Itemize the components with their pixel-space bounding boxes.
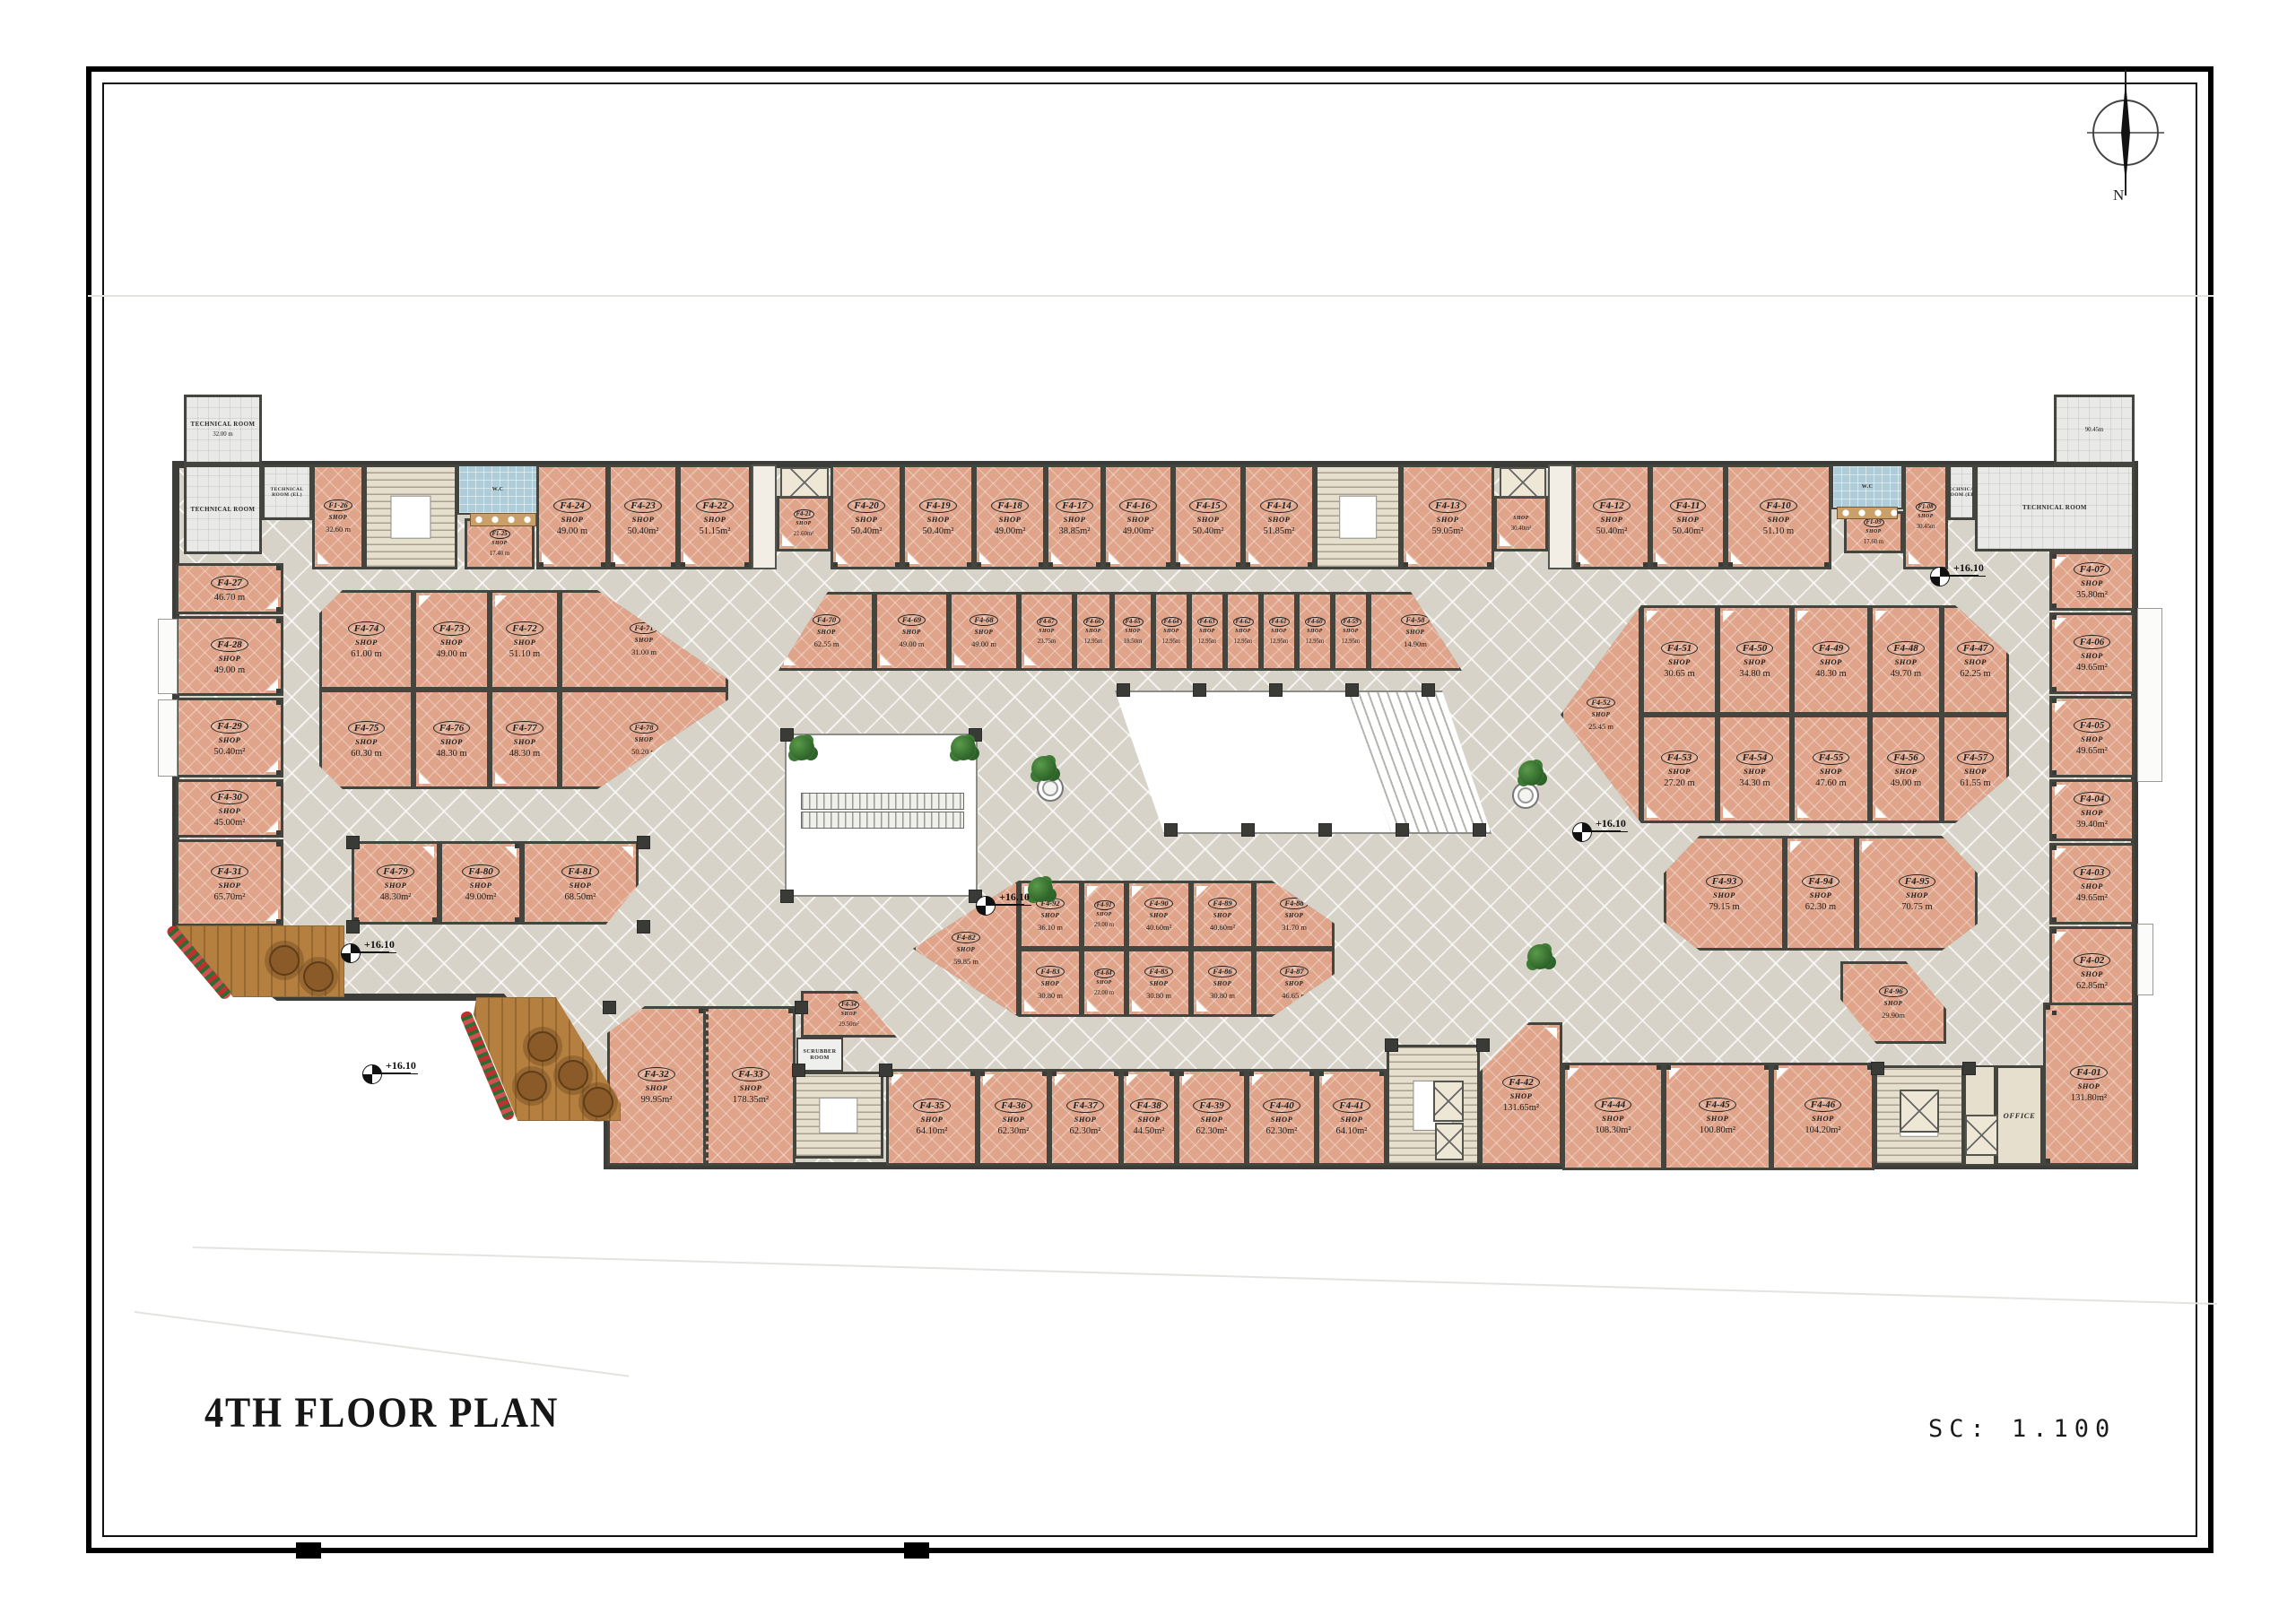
shop-area: 18.50m <box>1124 637 1143 647</box>
column-dot <box>276 616 283 623</box>
shop-word: SHOP <box>1510 1092 1533 1100</box>
shop-unit-F4-23: F4-23SHOP50.40m² <box>608 465 678 569</box>
shop-id-tag: F4-24 <box>553 499 591 513</box>
shop-id-tag: F4-51 <box>1661 641 1699 656</box>
shop-id-tag: F4-48 <box>1887 641 1925 656</box>
shop-area: 178.35m² <box>733 1095 769 1105</box>
shop: SHOP30.40m² <box>1494 496 1548 551</box>
shop-id-tag: F4-77 <box>506 721 544 735</box>
shop-unit-F4-86: F4-86SHOP30.80 m <box>1191 949 1254 1017</box>
shop-word: SHOP <box>902 629 921 637</box>
shop-word: SHOP <box>1601 516 1623 524</box>
structural-column <box>346 836 360 849</box>
column-dot <box>2049 779 2057 786</box>
column-dot <box>276 698 283 705</box>
shop-word: SHOP <box>1592 711 1611 719</box>
shop-id-tag: F4-40 <box>1263 1099 1300 1113</box>
column-dot <box>2049 917 2057 925</box>
room-w-c: W.C <box>457 465 538 515</box>
shop-unit-F4-05: F4-05SHOP49.65m² <box>2049 696 2135 777</box>
column-dot <box>1487 562 1494 569</box>
shop-unit-F4-72: F4-72SHOP51.10 m <box>490 590 560 690</box>
shop-word: SHOP <box>1074 1116 1097 1124</box>
terrace-table-icon <box>583 1087 613 1117</box>
shop-word: SHOP <box>740 1084 762 1092</box>
shop-id-tag: F4-06 <box>2074 635 2111 649</box>
shop-area: 49.00m² <box>465 892 497 902</box>
column-dot <box>536 562 544 569</box>
elevator-icon <box>1500 467 1546 498</box>
shop-word: SHOP <box>1213 980 1232 988</box>
shop-id-tag: F4-65 <box>1123 617 1144 627</box>
structural-column <box>1962 1062 1976 1075</box>
shop-unit-F1-08: F1-08SHOP30.45m <box>1903 465 1948 569</box>
plant-icon <box>789 735 814 760</box>
room-technical-room-el-: TECHNICAL ROOM (EL) <box>1948 465 1975 520</box>
shop-area: 35.80m² <box>2076 590 2108 600</box>
shop-unit-F4-68: F4-68SHOP49.00 m <box>949 592 1019 671</box>
shop-id-tag: F4-81 <box>561 864 599 879</box>
level-marker-icon <box>362 1064 382 1084</box>
shop-word: SHOP <box>561 516 584 524</box>
shop-unit-F4-30: F4-30SHOP45.00m² <box>176 779 283 838</box>
shop-unit-F4-45: F4-45SHOP100.80m² <box>1664 1063 1771 1170</box>
shop-id-tag: F4-01 <box>2070 1065 2108 1080</box>
shop-word: SHOP <box>1085 628 1100 636</box>
column-dot <box>2043 1159 2050 1166</box>
stair <box>364 465 457 569</box>
escalator-icon <box>801 812 964 829</box>
shop-word: SHOP <box>514 638 536 647</box>
shop-unit-F4-91: F4-91SHOP29.00 m <box>1082 881 1126 949</box>
shop-area: 60.30 m <box>351 749 381 759</box>
level-marker-icon <box>1930 567 1950 586</box>
shop-area: 17.40 m <box>490 549 509 559</box>
shop-word: SHOP <box>796 520 811 528</box>
shop-area: 49.00 m <box>900 639 925 649</box>
shop-word: SHOP <box>957 946 976 954</box>
room-technical-room: TECHNICAL ROOM <box>1975 465 2135 551</box>
shop-word: SHOP <box>1964 768 1987 776</box>
shop-unit-F4-94: F4-94SHOP62.30 m <box>1785 836 1857 951</box>
column-dot <box>1764 1063 1771 1070</box>
shop-area: 61.00 m <box>351 649 381 659</box>
shop-area: 12.95m <box>1270 637 1289 647</box>
shop-area: 36.10 m <box>1038 923 1063 933</box>
shop-unit-F4-84: F4-84SHOP22.00 m <box>1082 949 1126 1017</box>
shop-id-tag: F4-63 <box>1197 617 1218 627</box>
column-dot <box>1379 1069 1387 1076</box>
shop-word: SHOP <box>1041 912 1060 920</box>
structural-column <box>1241 823 1255 837</box>
column-dot <box>978 1069 985 1076</box>
shop-unit-F4-48: F4-48SHOP49.70 m <box>1870 605 1942 715</box>
shop-id-tag: F4-36 <box>995 1099 1032 1113</box>
shop-word: SHOP <box>1125 628 1140 636</box>
shop-id-tag: F4-74 <box>348 621 386 636</box>
shop-area: 50.40m² <box>1596 526 1628 536</box>
shop-id-tag: F4-55 <box>1813 751 1850 765</box>
shop-unit-F4-19: F4-19SHOP50.40m² <box>902 465 974 569</box>
column-dot <box>1309 1069 1317 1076</box>
shop-area: 62.30m² <box>998 1126 1030 1136</box>
room-technical-room: TECHNICAL ROOM32.00 m <box>184 395 262 465</box>
shop-word: SHOP <box>632 516 655 524</box>
column-dot <box>1170 1069 1177 1076</box>
column-dot <box>2049 696 2057 703</box>
shop-id-tag: F4-84 <box>1094 968 1115 978</box>
shop-area: 49.00m² <box>995 526 1026 536</box>
shop-unit-F4-59: F4-59SHOP12.95m <box>1333 592 1369 671</box>
shop-id-tag: F4-90 <box>1144 898 1172 909</box>
room-name: TECHNICAL ROOM <box>2022 504 2087 512</box>
shop-unit-F4-51: F4-51SHOP30.65 m <box>1641 605 1718 715</box>
shop-word: SHOP <box>1437 516 1459 524</box>
shop-id-tag: F4-85 <box>1144 966 1172 977</box>
shop-area: 34.80 m <box>1739 669 1770 679</box>
column-dot <box>432 917 439 925</box>
void <box>1115 690 1492 834</box>
shop-area: 29.90m <box>1882 1011 1905 1020</box>
room-name: W.C <box>492 485 503 495</box>
shop-word: SHOP <box>1707 1115 1729 1123</box>
shop-id-tag: F4-53 <box>1661 751 1699 765</box>
terrace-table-icon <box>517 1071 547 1101</box>
shop-id-tag: F4-75 <box>348 721 386 735</box>
shop-unit-F4-79: F4-79SHOP48.30m² <box>352 841 439 925</box>
shop-area: 49.65m² <box>2076 746 2108 756</box>
shop-word: SHOP <box>1041 980 1060 988</box>
shop-word: SHOP <box>1768 516 1790 524</box>
shop-word: SHOP <box>646 1084 668 1092</box>
shop-area: 68.50m² <box>565 892 596 902</box>
shop-area: 14.90m <box>1404 639 1427 649</box>
shop-word: SHOP <box>1271 1116 1293 1124</box>
elevator-icon <box>780 467 829 498</box>
shop-unit-F4-44: F4-44SHOP108.30m² <box>1562 1063 1664 1170</box>
shop-word: SHOP <box>2081 652 2103 660</box>
shop-area: 30.80 m <box>1210 991 1235 1001</box>
tech: 90.45m <box>2054 395 2135 465</box>
shop-unit-F4-56: F4-56SHOP49.00 m <box>1870 715 1942 823</box>
column-dot <box>1771 1063 1779 1070</box>
shop-id-tag: F4-39 <box>1193 1099 1231 1113</box>
shop-unit-F4-90: F4-90SHOP40.60m² <box>1126 881 1191 949</box>
shop-word: SHOP <box>440 738 463 746</box>
shop-area: 30.65 m <box>1664 669 1694 679</box>
shop-unit-F4-01: F4-01SHOP131.80m² <box>2043 1003 2135 1166</box>
shop-unit-F4-74: F4-74SHOP61.00 m <box>319 590 413 690</box>
column-dot <box>1401 562 1408 569</box>
shop-word: SHOP <box>1406 629 1425 637</box>
structural-column <box>1345 683 1359 697</box>
column-dot <box>276 919 283 926</box>
round-planter-icon <box>1512 782 1539 809</box>
shop-id-tag: F4-52 <box>1587 697 1614 708</box>
shop-area: 104.20m² <box>1805 1125 1840 1135</box>
structural-column <box>879 1064 892 1077</box>
shop-word: SHOP <box>2081 809 2103 817</box>
shop-word: SHOP <box>1127 516 1150 524</box>
shop-area: 34.30 m <box>1739 778 1770 788</box>
shop-id-tag: F4-19 <box>919 499 957 513</box>
shop-id-tag: F4-95 <box>1899 874 1936 889</box>
structural-column <box>1396 823 1409 837</box>
shop-id-tag: F4-57 <box>1957 751 1995 765</box>
room-name: TECHNICAL ROOM (EL) <box>1948 487 1975 499</box>
shop-area: 29.50m² <box>839 1020 859 1029</box>
shop-area: 30.80 m <box>1146 991 1171 1001</box>
shop-word: SHOP <box>841 1011 857 1019</box>
column-dot <box>1247 1069 1254 1076</box>
shop-word: SHOP <box>1744 658 1766 666</box>
plant-icon <box>1031 756 1057 781</box>
shop-id-tag: F4-02 <box>2074 953 2111 968</box>
column-dot <box>1726 562 1733 569</box>
shop-unit-F4-29: F4-29SHOP50.40m² <box>176 698 283 777</box>
shop-unit-F4-80: F4-80SHOP49.00m² <box>439 841 522 925</box>
structural-column <box>346 920 360 934</box>
shop-unit-F4-11: F4-11SHOP50.40m² <box>1650 465 1726 569</box>
shop-id-tag: F4-83 <box>1036 966 1064 977</box>
column-dot <box>515 917 522 925</box>
shop-id-tag: F4-46 <box>1805 1098 1842 1112</box>
shop-id-tag: F4-28 <box>211 638 248 652</box>
shop-id-tag: F4-94 <box>1802 874 1839 889</box>
shop-unit-F4-20: F4-20SHOP50.40m² <box>831 465 902 569</box>
shop-word: SHOP <box>1271 628 1286 636</box>
stair <box>1315 465 1401 569</box>
structural-column <box>1164 823 1178 837</box>
shop-unit-F4-83: F4-83SHOP30.80 m <box>1019 949 1082 1017</box>
terrace-table-icon <box>303 961 334 992</box>
shop-word: SHOP <box>470 881 492 890</box>
shop-word: SHOP <box>1513 515 1528 523</box>
terrace-table-icon <box>527 1031 558 1062</box>
shop-area: 17.60 m <box>1864 537 1883 547</box>
shop-word: SHOP <box>1820 768 1842 776</box>
north-label: N <box>2113 187 2124 204</box>
column-dot <box>1121 1069 1128 1076</box>
shop-word: SHOP <box>570 881 592 890</box>
column-dot <box>1650 562 1657 569</box>
shop-area: 50.40m² <box>851 526 883 536</box>
column-dot <box>276 563 283 570</box>
plant-icon <box>1527 944 1552 969</box>
shop-area: 22.00 m <box>1094 988 1114 998</box>
shop-id-tag: F4-34 <box>839 1000 859 1010</box>
shop-unit-F4-39: F4-39SHOP62.30m² <box>1177 1069 1247 1166</box>
shop-unit-F4-49: F4-49SHOP48.30 m <box>1792 605 1870 715</box>
level-value: +16.10 <box>997 890 1031 906</box>
shop-area: 49.00 m <box>971 639 996 649</box>
structural-column <box>795 1001 808 1014</box>
shop-unit-F4-38: F4-38SHOP44.50m² <box>1121 1069 1177 1166</box>
shop-word: SHOP <box>1668 768 1691 776</box>
column-dot <box>2049 834 2057 841</box>
shop-unit-F4-75: F4-75SHOP60.30 m <box>319 690 413 789</box>
shop-word: SHOP <box>1285 980 1304 988</box>
shop-id-tag: F4-60 <box>1305 617 1326 627</box>
shop-id-tag: F1-26 <box>324 499 352 511</box>
shop-area: 131.65m² <box>1503 1103 1539 1113</box>
shop-area: 50.40m² <box>628 526 659 536</box>
shop-area: 32.60 m <box>326 525 351 534</box>
shop-id-tag: F4-82 <box>952 932 979 943</box>
shop-area: 12.95m <box>1198 637 1217 647</box>
shop-word: SHOP <box>219 881 241 890</box>
shop-area: 30.45m <box>1917 522 1935 532</box>
column-dot <box>1243 562 1250 569</box>
shop-id-tag: F4-66 <box>1083 617 1104 627</box>
shop-id-tag: F4-23 <box>624 499 662 513</box>
structural-column <box>792 1064 805 1077</box>
terrace-table-icon <box>269 945 300 976</box>
shop-word: SHOP <box>1677 516 1700 524</box>
shop-word: SHOP <box>1865 528 1881 536</box>
shop-unit-F4-16: F4-16SHOP49.00m² <box>1103 465 1173 569</box>
shop-area: 49.00 m <box>436 649 466 659</box>
shop-word: SHOP <box>2081 882 2103 890</box>
shop-area: 62.30m² <box>1070 1126 1101 1136</box>
shop-unit-F4-40: F4-40SHOP62.30m² <box>1247 1069 1317 1166</box>
shop-word: SHOP <box>1602 1115 1624 1123</box>
room-name: TECHNICAL ROOM (EL) <box>265 487 309 499</box>
shop-id-tag: F1-25 <box>490 529 510 539</box>
column-dot <box>2049 612 2057 620</box>
shop-area: 30.80 m <box>1038 991 1063 1001</box>
shop-word: SHOP <box>975 629 994 637</box>
shop-word: SHOP <box>1964 658 1987 666</box>
shop-area: 62.30m² <box>1196 1126 1228 1136</box>
column-dot <box>276 770 283 777</box>
structural-column <box>603 1001 616 1014</box>
shop-word: SHOP <box>1343 628 1358 636</box>
structural-column <box>1117 683 1130 697</box>
north-compass-icon <box>2076 63 2175 215</box>
page-title: 4TH FLOOR PLAN <box>204 1388 559 1437</box>
shop-word: SHOP <box>1064 516 1086 524</box>
balcony <box>158 619 178 694</box>
column-dot <box>2049 551 2057 559</box>
shop-area: 64.10m² <box>1336 1126 1368 1136</box>
shop-area: 51.10 m <box>509 649 540 659</box>
shop-island: F4-52SHOP25.45 mF4-51SHOP30.65 mF4-50SHO… <box>1561 605 2009 823</box>
shop-id-tag: F4-17 <box>1056 499 1093 513</box>
shop-area: 29.00 m <box>1094 920 1114 930</box>
column-dot <box>1573 562 1580 569</box>
shop-unit-F4-60: F4-60SHOP12.95m <box>1297 592 1333 671</box>
shop-id-tag: F4-31 <box>211 864 248 879</box>
shop-area: 47.60 m <box>1815 778 1846 788</box>
shop-area: 108.30m² <box>1595 1125 1631 1135</box>
shop-word: SHOP <box>219 736 241 744</box>
shop-area: 49.00m² <box>1123 526 1154 536</box>
shop-unit-F4-41: F4-41SHOP64.10m² <box>1317 1069 1387 1166</box>
shop-id-tag: F1-08 <box>1916 502 1936 512</box>
shop-area: 25.45 m <box>1588 722 1613 732</box>
shop-area: 31.70 m <box>1282 923 1307 933</box>
shop-area: 65.70m² <box>214 892 246 902</box>
shop-area: 90.45m <box>2085 425 2104 435</box>
shop-area: 49.70 m <box>1891 669 1921 679</box>
column-dot <box>1239 1069 1247 1076</box>
shop-unit-F4-37: F4-37SHOP62.30m² <box>1049 1069 1121 1166</box>
room-technical-room-el-: TECHNICAL ROOM (EL) <box>262 465 312 520</box>
shop-id-tag: F4-22 <box>696 499 734 513</box>
column-dot <box>2049 926 2057 934</box>
shop-area: 12.95m <box>1342 637 1361 647</box>
room-technical-room: TECHNICAL ROOM <box>184 465 262 554</box>
voidstrip <box>752 465 777 569</box>
shop-word: SHOP <box>1003 1116 1025 1124</box>
plant-icon <box>951 735 976 760</box>
elevator-icon <box>1900 1090 1939 1133</box>
shop-unit-F4-55: F4-55SHOP47.60 m <box>1792 715 1870 823</box>
column-dot <box>2043 1003 2050 1010</box>
shop-island: F4-93SHOP79.15 mF4-94SHOP62.30 mF4-95SHO… <box>1664 836 1978 951</box>
room-name: W.C <box>1862 482 1873 492</box>
shop-word: SHOP <box>2078 1082 2100 1090</box>
elevator-icon <box>1433 1081 1464 1122</box>
shop-area: 32.00 m <box>213 430 232 439</box>
shop-word: SHOP <box>385 881 407 890</box>
column-dot <box>1046 562 1053 569</box>
shop-word: SHOP <box>2081 735 2103 743</box>
shop-id-tag: F4-32 <box>638 1067 675 1081</box>
structural-column <box>637 836 650 849</box>
balcony <box>2137 608 2162 782</box>
shop-unit-F4-77: F4-77SHOP48.30 m <box>490 690 560 789</box>
level-value: +16.10 <box>1594 817 1628 832</box>
shop-unit-F4-54: F4-54SHOP34.30 m <box>1718 715 1792 823</box>
shop-word: SHOP <box>1285 912 1304 920</box>
shop-id-tag: F4-47 <box>1957 641 1995 656</box>
shop-id-tag: F4-03 <box>2074 865 2111 880</box>
shop-id-tag: F4-33 <box>732 1067 770 1081</box>
shop-id-tag: F4-96 <box>1879 986 1907 997</box>
shop-unit-F4-85: F4-85SHOP30.80 m <box>1126 949 1191 1017</box>
shop-unit-F4-04: F4-04SHOP39.40m² <box>2049 779 2135 841</box>
shop-id-tag: F4-64 <box>1161 617 1182 627</box>
escalator-icon <box>801 793 964 810</box>
shop-unit-F4-50: F4-50SHOP34.80 m <box>1718 605 1792 715</box>
column-dot <box>970 1069 978 1076</box>
shop-word: SHOP <box>2081 970 2103 978</box>
shop-unit-F4-28: F4-28SHOP49.00 m <box>176 616 283 696</box>
column-dot <box>1308 562 1315 569</box>
shop-id-tag: F4-72 <box>506 621 544 636</box>
shop-area: 51.10 m <box>1763 526 1794 536</box>
column-dot <box>1114 1069 1121 1076</box>
shop-word: SHOP <box>927 516 950 524</box>
shop-word: SHOP <box>1150 980 1169 988</box>
shop-area: 12.95m <box>1162 637 1181 647</box>
shop-id-tag: F4-27 <box>211 576 248 590</box>
column-dot <box>671 562 678 569</box>
shop-area: 38.85m² <box>1059 526 1091 536</box>
shop-word: SHOP <box>1307 628 1322 636</box>
level-marker-icon <box>1572 822 1592 842</box>
level-value: +16.10 <box>384 1059 418 1074</box>
shop-id-tag: F4-20 <box>848 499 885 513</box>
shop-id-tag: F4-76 <box>433 721 471 735</box>
shop-word: SHOP <box>1810 891 1832 899</box>
shop-area: 40.60m² <box>1210 923 1235 933</box>
structural-column <box>1871 1062 1884 1075</box>
shop-id-tag: F4-10 <box>1760 499 1797 513</box>
shop-word: SHOP <box>1096 979 1111 987</box>
